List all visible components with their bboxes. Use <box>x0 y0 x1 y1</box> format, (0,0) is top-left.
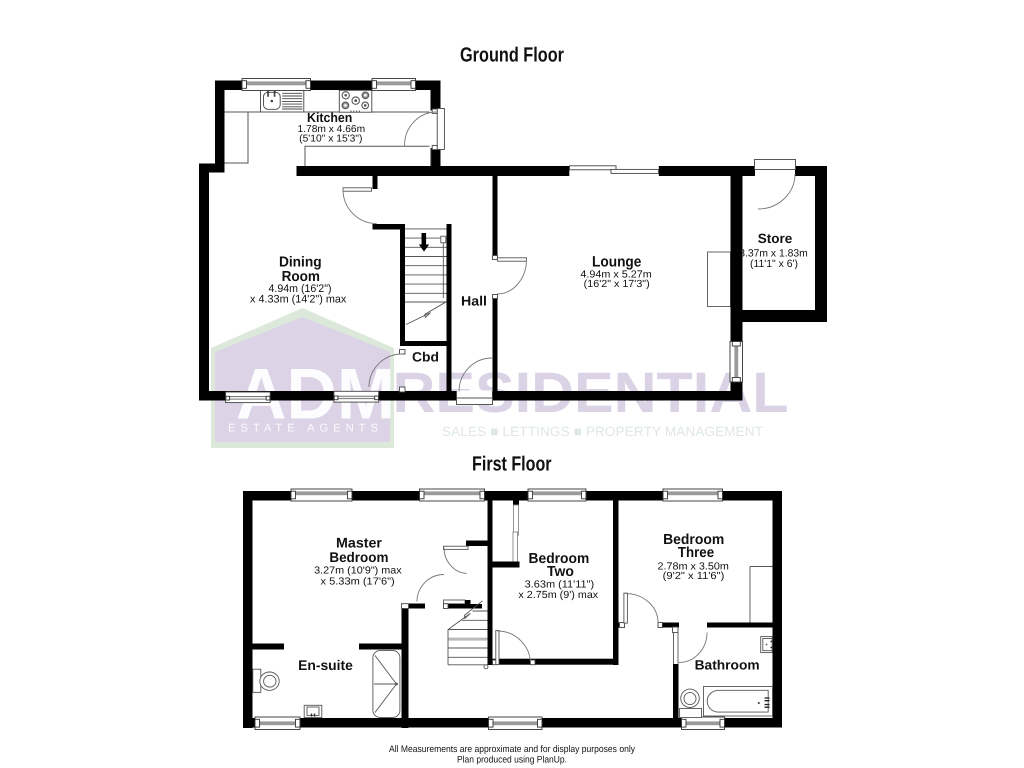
svg-text:(11'1" x 6'): (11'1" x 6') <box>750 258 798 270</box>
svg-text:Ground Floor: Ground Floor <box>460 44 564 67</box>
svg-text:x 4.33m (14'2") max: x 4.33m (14'2") max <box>250 294 347 306</box>
svg-text:Store: Store <box>758 231 793 246</box>
svg-text:3.27m (10'9") max: 3.27m (10'9") max <box>314 566 402 577</box>
svg-text:Plan produced using PlanUp.: Plan produced using PlanUp. <box>457 755 567 766</box>
svg-text:Hall: Hall <box>461 294 487 309</box>
svg-text:(9'2" x 11'6"): (9'2" x 11'6") <box>663 571 725 582</box>
svg-text:Kitchen: Kitchen <box>307 110 352 125</box>
svg-text:x 2.75m (9') max: x 2.75m (9') max <box>518 590 599 601</box>
svg-text:Bathroom: Bathroom <box>695 658 760 673</box>
svg-text:En-suite: En-suite <box>298 657 353 673</box>
svg-text:Two: Two <box>547 564 574 580</box>
svg-text:Bedroom: Bedroom <box>329 549 388 565</box>
svg-text:Three: Three <box>678 545 714 561</box>
svg-text:(5'10" x 15'3"): (5'10" x 15'3") <box>299 134 362 145</box>
svg-text:SALES ■ LETTINGS ■ PROPERTY MA: SALES ■ LETTINGS ■ PROPERTY MANAGEMENT <box>442 424 763 439</box>
svg-text:Lounge: Lounge <box>592 254 641 271</box>
svg-text:(16'2" x 17'3"): (16'2" x 17'3") <box>584 279 650 290</box>
svg-text:First Floor: First Floor <box>472 453 552 476</box>
svg-text:x 5.33m (17'6"): x 5.33m (17'6") <box>321 577 395 588</box>
svg-text:All Measurements are approxima: All Measurements are approximate and for… <box>389 744 635 755</box>
svg-text:Cbd: Cbd <box>412 350 439 365</box>
